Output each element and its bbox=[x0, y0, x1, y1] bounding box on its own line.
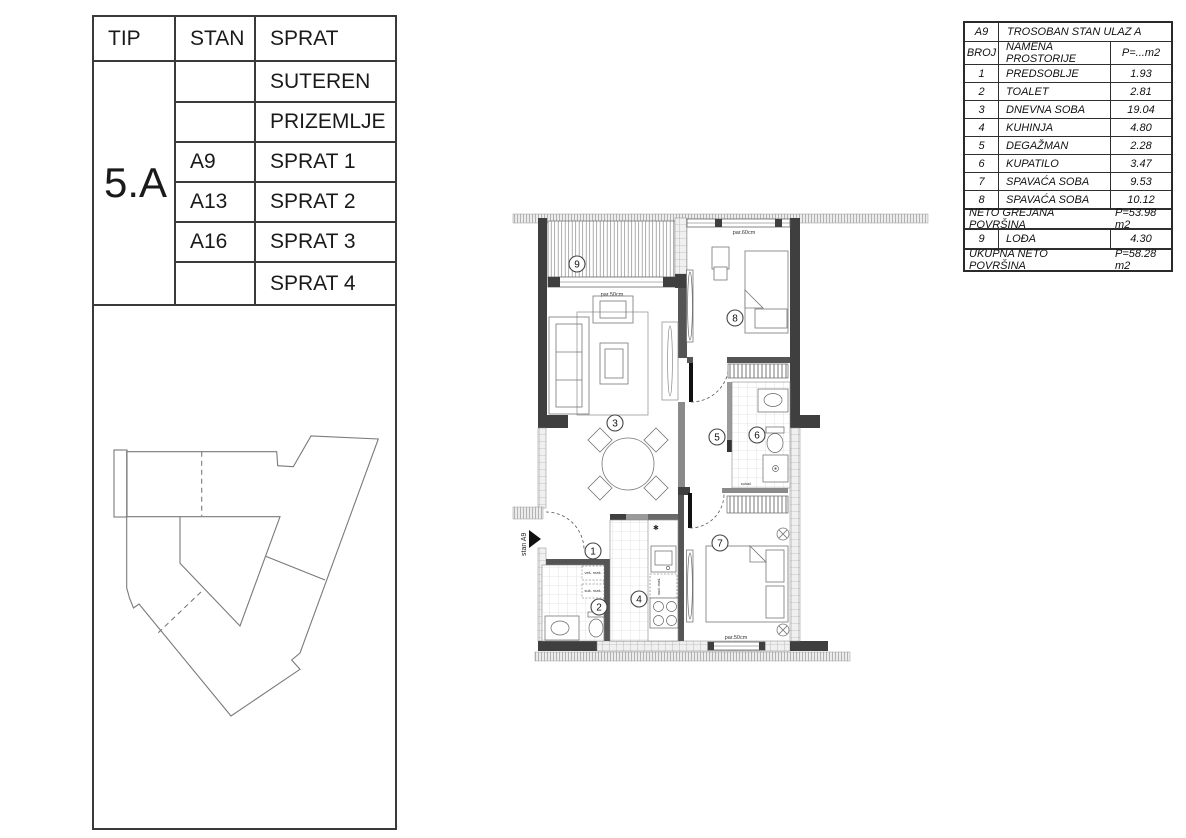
bedroom8-window bbox=[687, 219, 790, 227]
stan-cell-3: A13 bbox=[176, 183, 256, 223]
room-number-3: 3 bbox=[607, 415, 623, 431]
dryer-small-label: sušač bbox=[741, 481, 751, 486]
room-name: SPAVAĆA SOBA bbox=[999, 191, 1111, 208]
room-name: KUHINJA bbox=[999, 119, 1111, 136]
col-broj: BROJ bbox=[965, 42, 999, 64]
wardrobe-bedroom7 bbox=[727, 496, 788, 513]
loggia-window-label: par.50cm bbox=[601, 292, 624, 298]
room-broj: 1 bbox=[965, 65, 999, 82]
sofa-icon bbox=[549, 317, 589, 414]
table-row: 6 KUPATILO 3.47 bbox=[965, 155, 1171, 173]
sprat-cell-4: SPRAT 3 bbox=[256, 223, 395, 263]
area-table-title-row: A9 TROSOBAN STAN ULAZ A bbox=[965, 23, 1171, 42]
site-middle-wing bbox=[180, 517, 280, 626]
room-area: 4.30 bbox=[1111, 230, 1171, 248]
tv-stand-icon bbox=[593, 296, 633, 323]
unit-id: A9 bbox=[965, 23, 999, 41]
room-number-9: 9 bbox=[569, 256, 585, 272]
stan-cell-5 bbox=[176, 263, 256, 304]
sprat-cell-0: SUTEREN bbox=[256, 62, 395, 103]
col-namena: NAMENA PROSTORIJE bbox=[999, 42, 1111, 64]
room-number-7: 7 bbox=[712, 535, 728, 551]
kitchen-star-icon: ✱ bbox=[653, 524, 659, 532]
sliding-door-bedroom8 bbox=[687, 270, 694, 342]
room-number-2: 2 bbox=[591, 599, 607, 615]
neto-row: NETO GREJANA POVRŠINA P=53.98 m2 bbox=[965, 209, 1171, 229]
room-area: 9.53 bbox=[1111, 173, 1171, 190]
room-name: DEGAŽMAN bbox=[999, 137, 1111, 154]
desk-chair-icon bbox=[714, 267, 727, 280]
entrance-arrow-icon bbox=[529, 530, 541, 548]
room-name: TOALET bbox=[999, 83, 1111, 100]
site-inner-line-2 bbox=[265, 556, 325, 580]
bed8-pillow bbox=[755, 309, 787, 328]
washbasin-icon bbox=[758, 389, 788, 412]
area-table-header-row: BROJ NAMENA PROSTORIJE P=...m2 bbox=[965, 42, 1171, 65]
toilet-icon bbox=[766, 427, 784, 453]
entrance-label: stan A9 bbox=[521, 533, 528, 556]
page: TIP STAN SPRAT 5.A SUTEREN PRIZEMLJE A9 … bbox=[0, 0, 1186, 838]
room-name: KUPATILO bbox=[999, 155, 1111, 172]
kitchen: sud. maš. bbox=[610, 520, 678, 641]
col-p: P=...m2 bbox=[1111, 42, 1171, 64]
room-area: 2.28 bbox=[1111, 137, 1171, 154]
room-broj: 8 bbox=[965, 191, 999, 208]
room-name: SPAVAĆA SOBA bbox=[999, 173, 1111, 190]
table-row: 3 DNEVNA SOBA 19.04 bbox=[965, 101, 1171, 119]
sprat-cell-5: SPRAT 4 bbox=[256, 263, 395, 304]
bedroom7-window-label: par.50cm bbox=[725, 635, 748, 641]
room-name: PREDSOBLJE bbox=[999, 65, 1111, 82]
table-row: 2 TOALET 2.81 bbox=[965, 83, 1171, 101]
shower-icon bbox=[763, 455, 788, 482]
loggia-area bbox=[548, 221, 675, 278]
room-area: 19.04 bbox=[1111, 101, 1171, 118]
svg-text:1: 1 bbox=[590, 547, 596, 558]
bedroom8-window-label: par.60cm bbox=[733, 230, 756, 236]
table-row: 4 KUHINJA 4.80 bbox=[965, 119, 1171, 137]
ukupna-value: P=58.28 m2 bbox=[1111, 250, 1171, 270]
room-broj: 5 bbox=[965, 137, 999, 154]
header-sprat: SPRAT bbox=[256, 17, 395, 62]
type-value: 5.A bbox=[94, 62, 176, 304]
nightstand-lamp-icon bbox=[777, 528, 789, 540]
ukupna-label: UKUPNA NETO POVRŠINA bbox=[965, 250, 1111, 270]
room-area: 4.80 bbox=[1111, 119, 1171, 136]
area-table: A9 TROSOBAN STAN ULAZ A BROJ NAMENA PROS… bbox=[963, 21, 1173, 272]
dishwasher-icon bbox=[650, 574, 677, 598]
table-row: 5 DEGAŽMAN 2.28 bbox=[965, 137, 1171, 155]
header-stan: STAN bbox=[176, 17, 256, 62]
stan-cell-1 bbox=[176, 103, 256, 143]
toilet-bowl-icon bbox=[588, 612, 604, 637]
degazman-door bbox=[689, 363, 729, 402]
dryer-label: suš. maš. bbox=[584, 588, 601, 593]
site-left-annex bbox=[114, 450, 127, 517]
room-number-6: 6 bbox=[749, 427, 765, 443]
room-broj: 4 bbox=[965, 119, 999, 136]
header-tip: TIP bbox=[94, 17, 176, 62]
washer-label: veš. maš. bbox=[584, 570, 601, 575]
room-number-5: 5 bbox=[709, 429, 725, 445]
type-floor-table: TIP STAN SPRAT 5.A SUTEREN PRIZEMLJE A9 … bbox=[94, 17, 395, 306]
loggia-window bbox=[548, 277, 675, 287]
room-broj: 2 bbox=[965, 83, 999, 100]
stove-icon bbox=[650, 598, 678, 628]
bed7-pillow bbox=[766, 550, 784, 582]
living-room bbox=[549, 296, 648, 415]
adjacent-band-bottom bbox=[535, 652, 850, 661]
svg-text:7: 7 bbox=[717, 539, 723, 550]
neto-label: NETO GREJANA POVRŠINA bbox=[965, 210, 1111, 228]
bedroom7-vestibule-door bbox=[688, 493, 724, 528]
sprat-cell-1: PRIZEMLJE bbox=[256, 103, 395, 143]
room-area: 3.47 bbox=[1111, 155, 1171, 172]
dining-table-icon bbox=[602, 438, 654, 490]
room-number-8: 8 bbox=[727, 310, 743, 326]
room-number-4: 4 bbox=[631, 591, 647, 607]
svg-text:8: 8 bbox=[732, 314, 738, 325]
stan-cell-2: A9 bbox=[176, 143, 256, 183]
svg-text:5: 5 bbox=[714, 433, 720, 444]
svg-text:4: 4 bbox=[636, 595, 642, 606]
sprat-cell-3: SPRAT 2 bbox=[256, 183, 395, 223]
room-number-1: 1 bbox=[585, 543, 601, 559]
svg-text:9: 9 bbox=[574, 260, 580, 271]
room-name: DNEVNA SOBA bbox=[999, 101, 1111, 118]
svg-text:2: 2 bbox=[596, 603, 602, 614]
room-broj: 7 bbox=[965, 173, 999, 190]
room-name: LOĐA bbox=[999, 230, 1111, 248]
rug bbox=[577, 312, 648, 415]
svg-text:6: 6 bbox=[754, 431, 760, 442]
sprat-cell-2: SPRAT 1 bbox=[256, 143, 395, 183]
kitchen-sink-icon bbox=[651, 546, 676, 572]
desk-icon bbox=[712, 247, 729, 269]
stan-cell-4: A16 bbox=[176, 223, 256, 263]
toilet-washbasin-icon bbox=[545, 616, 579, 640]
site-dashed-line-2 bbox=[158, 591, 202, 633]
dining-set bbox=[588, 428, 668, 500]
bed7-pillow bbox=[766, 586, 784, 618]
nightstand-lamp-icon bbox=[777, 624, 789, 636]
coffee-table-icon bbox=[600, 343, 628, 384]
bedroom7-window bbox=[708, 642, 765, 650]
neto-value: P=53.98 m2 bbox=[1111, 210, 1171, 228]
room-broj: 6 bbox=[965, 155, 999, 172]
site-outer-boundary bbox=[127, 436, 379, 716]
room-broj: 9 bbox=[965, 230, 999, 248]
sliding-door-bedroom7 bbox=[687, 550, 694, 622]
lodja-row: 9 LOĐA 4.30 bbox=[965, 229, 1171, 249]
bedroom8 bbox=[712, 247, 788, 333]
sliding-door-living bbox=[662, 322, 678, 400]
site-plan-outline bbox=[100, 420, 390, 730]
stan-cell-0 bbox=[176, 62, 256, 103]
table-row: 1 PREDSOBLJE 1.93 bbox=[965, 65, 1171, 83]
ukupna-row: UKUPNA NETO POVRŠINA P=58.28 m2 bbox=[965, 249, 1171, 270]
wardrobe-corridor bbox=[728, 364, 788, 378]
room-area: 2.81 bbox=[1111, 83, 1171, 100]
room-area: 10.12 bbox=[1111, 191, 1171, 208]
table-row: 7 SPAVAĆA SOBA 9.53 bbox=[965, 173, 1171, 191]
floor-plan: par.50cm par.60cm bbox=[500, 205, 945, 670]
room-area: 1.93 bbox=[1111, 65, 1171, 82]
unit-title: TROSOBAN STAN ULAZ A bbox=[999, 23, 1171, 41]
svg-text:3: 3 bbox=[612, 419, 618, 430]
room-broj: 3 bbox=[965, 101, 999, 118]
dishwasher-label: sud. maš. bbox=[656, 578, 661, 595]
